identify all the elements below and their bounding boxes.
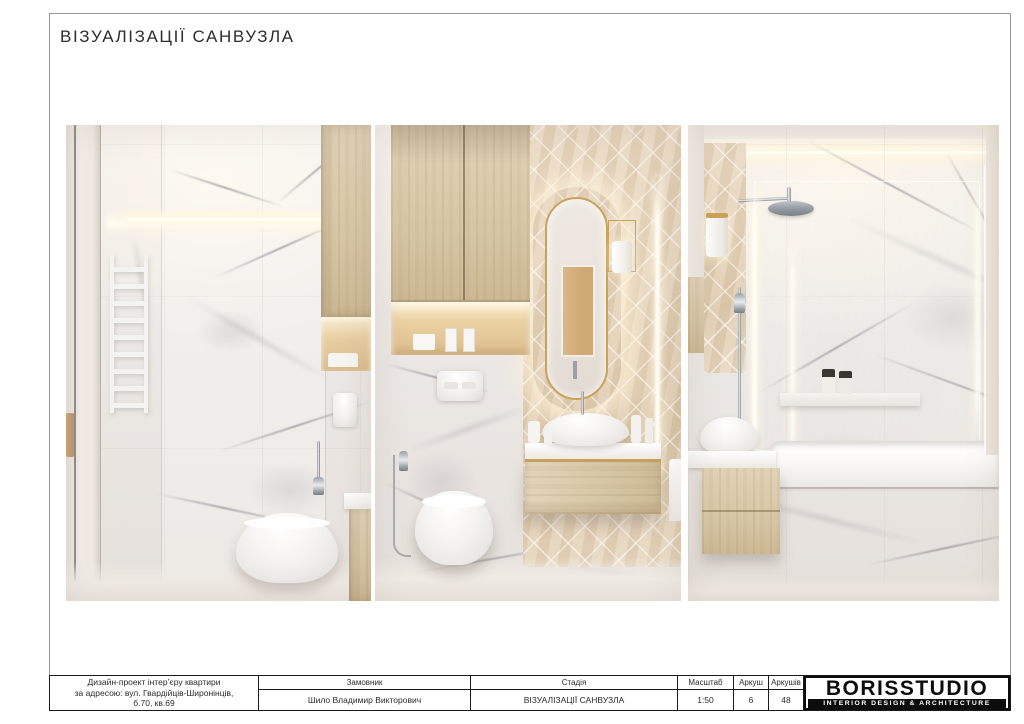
studio-logo: BORISSTUDIO INTERIOR DESIGN & ARCHITECTU…	[804, 676, 1010, 710]
sconce-shade	[706, 217, 728, 257]
project-line: за адресою: вул. Гвардійців-Широнінців,	[75, 688, 234, 699]
project-address-cell: Дизайн-проект інтер’єру квартири за адре…	[50, 676, 259, 710]
customer-header: Замовник	[259, 676, 470, 690]
floor	[375, 557, 681, 601]
wall-cabinet	[321, 125, 371, 317]
studio-logo-name: BORISSTUDIO	[808, 679, 1006, 699]
cabinet-shadow	[391, 125, 530, 163]
sheet-number-cell: Аркуш 6	[734, 676, 769, 710]
toiletry-bottles	[631, 415, 641, 443]
hand-shower	[734, 293, 745, 313]
door	[66, 125, 101, 601]
glass-edge-highlight	[975, 183, 980, 445]
faucet	[581, 391, 584, 415]
bidet-rim	[244, 517, 330, 529]
lit-niche	[391, 302, 530, 355]
bathtub-corner	[669, 459, 681, 521]
sprayer-handle	[399, 451, 408, 471]
sheet-header: Аркуш	[734, 676, 768, 690]
render-view-middle	[375, 125, 681, 601]
sheets-total-cell: Аркушів 48	[769, 676, 804, 710]
sconce-shade	[612, 241, 632, 273]
flush-button	[444, 382, 458, 389]
sheets-value: 48	[769, 690, 803, 710]
stage-cell: Стадія ВІЗУАЛІЗАЦІЇ САНВУЗЛА	[471, 676, 678, 710]
niche-box	[463, 328, 475, 352]
scale-header: Масштаб	[678, 676, 733, 690]
sheets-header: Аркушів	[769, 676, 803, 690]
vessel-sink	[542, 413, 629, 446]
vanity-side	[349, 509, 371, 601]
counter-edge	[344, 493, 371, 509]
door-handle	[66, 413, 74, 457]
countertop	[688, 451, 776, 468]
flush-plate	[437, 371, 483, 401]
sheet-value: 6	[734, 690, 768, 710]
bathtub	[770, 441, 999, 487]
vanity-drawers	[702, 468, 780, 554]
scale-cell: Масштаб 1:50	[678, 676, 734, 710]
niche-box	[445, 328, 457, 352]
toiletry-bottles	[528, 421, 540, 443]
customer-value: Шило Владимир Викторович	[259, 690, 470, 710]
scale-value: 1:50	[678, 690, 733, 710]
mirror-faucet-reflection	[573, 361, 577, 379]
sprayer-handle	[313, 477, 324, 495]
vessel-sink	[700, 417, 758, 455]
niche-towel-stack	[413, 334, 435, 350]
studio-logo-tagline: INTERIOR DESIGN & ARCHITECTURE	[808, 699, 1006, 709]
flush-button	[462, 382, 476, 389]
side-cabinet-sliver	[688, 125, 704, 277]
stage-value: ВІЗУАЛІЗАЦІЇ САНВУЗЛА	[471, 690, 677, 710]
vanity-cabinet	[525, 462, 661, 514]
page-title: ВІЗУАЛІЗАЦІЇ САНВУЗЛА	[60, 27, 295, 47]
tub-apron-joint	[770, 487, 999, 489]
glass-screen	[754, 181, 980, 451]
door-gap-shadow	[74, 125, 76, 601]
flush-plate	[333, 393, 357, 427]
floor	[688, 575, 999, 601]
soap-dispenser	[839, 371, 852, 394]
shower-shelf	[780, 393, 920, 406]
oval-mirror	[545, 197, 608, 400]
drawer-gap	[702, 510, 780, 512]
mirror-door-reflection	[561, 265, 595, 357]
sconce-gold-ring	[706, 213, 728, 218]
wood-shelf-sliver	[688, 277, 704, 353]
toilet-seat	[422, 495, 486, 508]
render-view-left	[66, 125, 371, 601]
stage-header: Стадія	[471, 676, 677, 690]
niche-towel	[328, 353, 358, 367]
tall-cabinet	[391, 125, 530, 302]
project-line: б.70, кв.69	[133, 698, 174, 709]
towel-radiator	[110, 255, 148, 413]
right-wall-return	[986, 125, 999, 455]
title-block: Дизайн-проект інтер’єру квартири за адре…	[49, 675, 1011, 711]
render-view-right	[688, 125, 999, 601]
design-sheet: ВІЗУАЛІЗАЦІЇ САНВУЗЛА	[0, 0, 1024, 724]
soap-dispenser	[822, 369, 835, 394]
project-line: Дизайн-проект інтер’єру квартири	[87, 677, 220, 688]
customer-cell: Замовник Шило Владимир Викторович	[259, 676, 471, 710]
